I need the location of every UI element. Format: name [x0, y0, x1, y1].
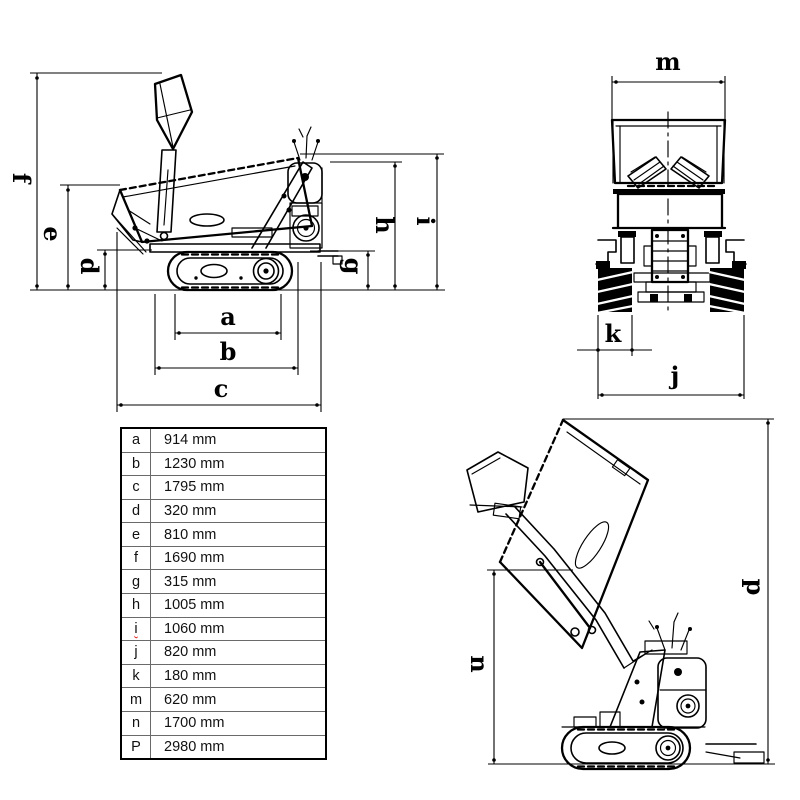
- dim-value: 1060 mm: [151, 618, 325, 641]
- dim-label-k: k: [600, 320, 626, 348]
- table-row: P 2980 mm: [122, 736, 325, 759]
- dim-key: c: [122, 476, 151, 499]
- dim-key: h: [122, 594, 151, 617]
- dimensions-table: a 914 mm b 1230 mm c 1795 mm d 320 mm e …: [120, 427, 327, 760]
- dump-view-engine: [649, 613, 706, 728]
- dim-label-c: c: [208, 375, 234, 403]
- dump-view-rear-hitch: [706, 744, 764, 763]
- table-row: m 620 mm: [122, 688, 325, 712]
- dim-value: 1005 mm: [151, 594, 325, 617]
- dim-label-b: b: [215, 338, 241, 366]
- dim-label-p: p: [741, 574, 769, 600]
- front-view-tracks: [597, 268, 745, 313]
- dim-value: 1690 mm: [151, 547, 325, 570]
- front-view-drawing: [596, 112, 746, 313]
- table-row: k 180 mm: [122, 665, 325, 689]
- table-row: h 1005 mm: [122, 594, 325, 618]
- dim-key: j: [122, 641, 151, 664]
- dim-key: a: [122, 429, 151, 452]
- dim-label-a: a: [215, 303, 241, 331]
- dim-label-j: j: [662, 362, 688, 390]
- dim-value: 1700 mm: [151, 712, 325, 735]
- table-row: d 320 mm: [122, 500, 325, 524]
- table-row: j 820 mm: [122, 641, 325, 665]
- dim-label-n: n: [465, 651, 493, 677]
- dimension-diagram-page: a b c d e f g h i j k m n p a 914 mm b 1…: [0, 0, 800, 800]
- dim-key: n: [122, 712, 151, 735]
- dim-value: 180 mm: [151, 665, 325, 688]
- table-row: f 1690 mm: [122, 547, 325, 571]
- dim-label-f: f: [7, 165, 35, 191]
- dim-key: k: [122, 665, 151, 688]
- dim-label-d: d: [75, 253, 103, 279]
- dim-value: 620 mm: [151, 688, 325, 711]
- side-view-loader-arm: [155, 75, 192, 240]
- dim-key: b: [122, 453, 151, 476]
- dim-value: 2980 mm: [151, 736, 325, 759]
- dim-value: 315 mm: [151, 570, 325, 593]
- dim-value: 810 mm: [151, 523, 325, 546]
- side-view-skip: [120, 158, 312, 242]
- dim-key: g: [122, 570, 151, 593]
- dump-view-drawing: [467, 420, 764, 769]
- table-row: a 914 mm: [122, 429, 325, 453]
- dim-label-i: i: [411, 208, 439, 234]
- dim-label-h: h: [370, 212, 398, 238]
- dump-view-skip: [500, 420, 648, 648]
- table-row: n 1700 mm: [122, 712, 325, 736]
- dim-label-e: e: [38, 221, 66, 247]
- side-view-drawing: [112, 75, 342, 290]
- dim-key: f: [122, 547, 151, 570]
- table-row: g 315 mm: [122, 570, 325, 594]
- dim-key: d: [122, 500, 151, 523]
- dim-key: e: [122, 523, 151, 546]
- dim-value: 1795 mm: [151, 476, 325, 499]
- dim-value: 820 mm: [151, 641, 325, 664]
- dump-view-loader-bucket: [467, 452, 528, 519]
- dim-label-m: m: [655, 48, 681, 76]
- dim-key: m: [122, 688, 151, 711]
- side-view-track: [168, 252, 292, 290]
- dim-key: P: [122, 736, 151, 759]
- dim-value: 1230 mm: [151, 453, 325, 476]
- dim-value: 914 mm: [151, 429, 325, 452]
- dump-view-track: [562, 712, 705, 769]
- table-row: i 1060 mm: [122, 618, 325, 642]
- dump-view-frame: [610, 641, 687, 727]
- dim-value: 320 mm: [151, 500, 325, 523]
- dim-key: i: [122, 618, 151, 641]
- table-row: c 1795 mm: [122, 476, 325, 500]
- dim-label-g: g: [339, 253, 367, 279]
- table-row: b 1230 mm: [122, 453, 325, 477]
- table-row: e 810 mm: [122, 523, 325, 547]
- dump-view-dimensions: [487, 419, 775, 764]
